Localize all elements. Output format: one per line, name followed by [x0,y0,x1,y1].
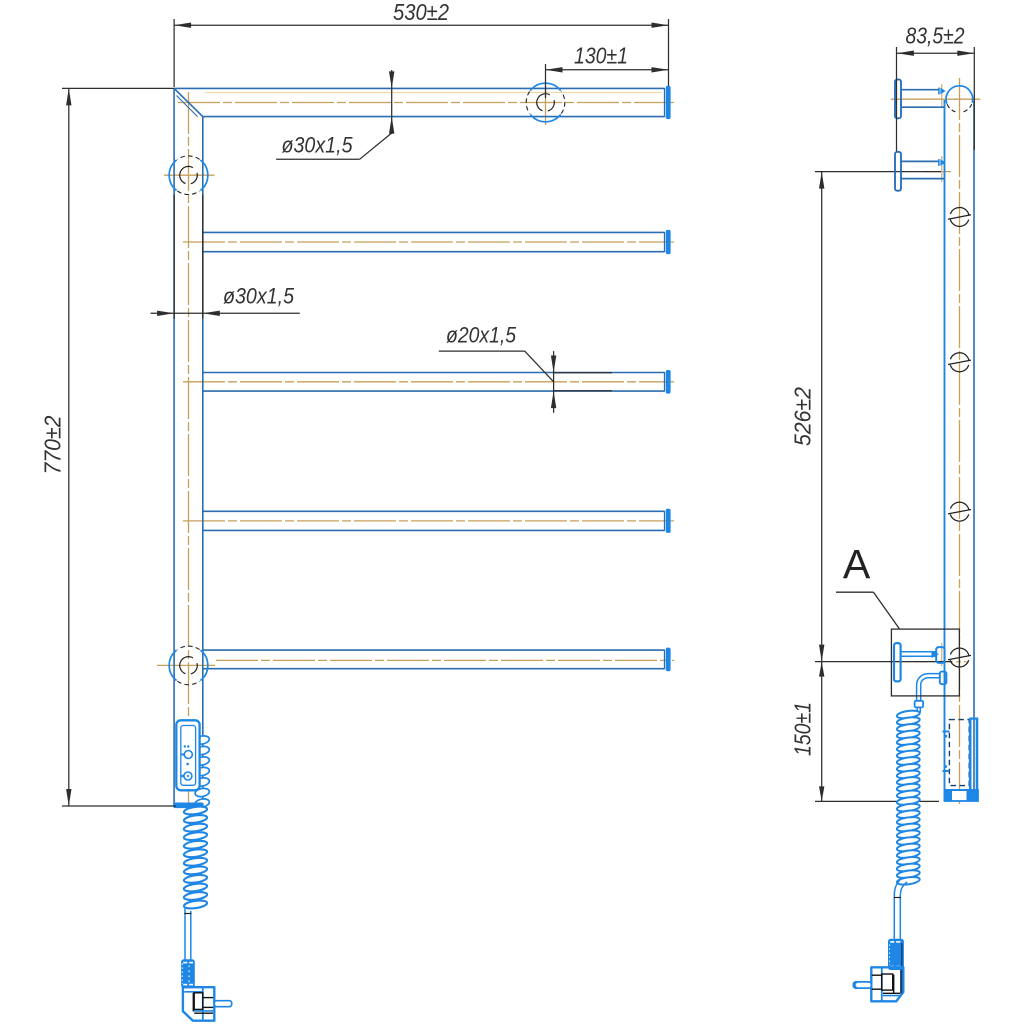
svg-text:ø20x1,5: ø20x1,5 [446,323,517,348]
svg-text:ø30x1,5: ø30x1,5 [282,133,354,158]
svg-text:ø30x1,5: ø30x1,5 [223,284,295,309]
svg-text:130±1: 130±1 [574,43,628,69]
svg-text:526±2: 526±2 [790,387,816,446]
svg-text:150±1: 150±1 [790,702,816,756]
svg-text:A: A [843,541,871,587]
svg-text:770±2: 770±2 [40,415,66,474]
svg-text:83,5±2: 83,5±2 [906,23,965,49]
svg-text:530±2: 530±2 [393,0,449,25]
